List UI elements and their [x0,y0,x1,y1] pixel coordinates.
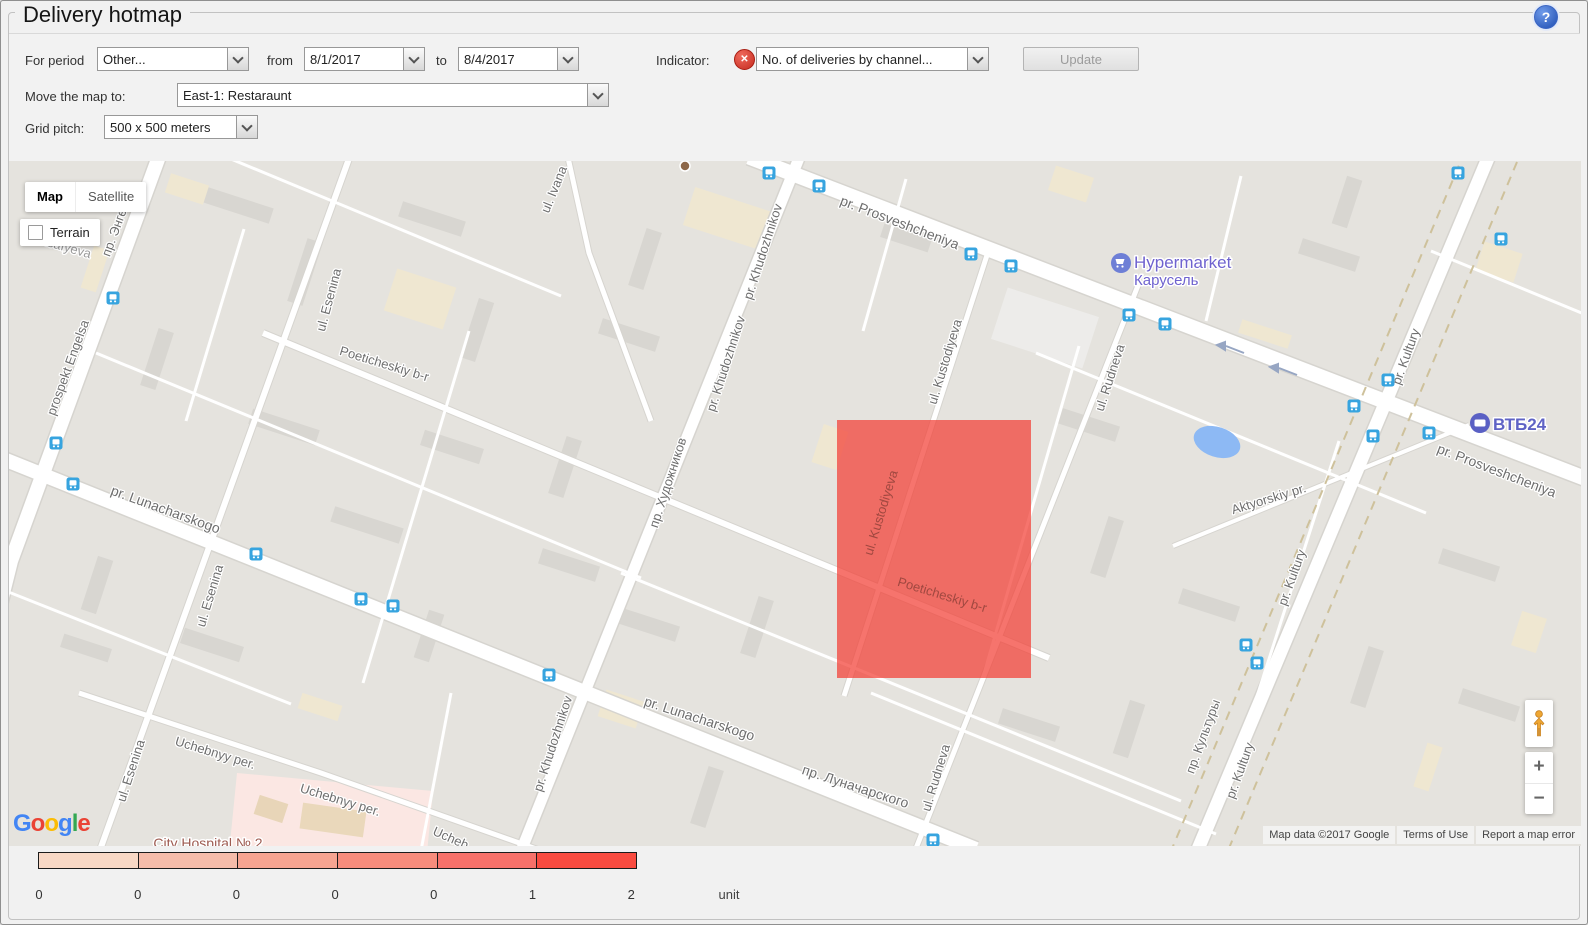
transit-stop-icon[interactable] [927,834,940,847]
legend-segment [138,852,239,869]
from-label: from [267,53,293,68]
terms-of-use-link[interactable]: Terms of Use [1397,826,1474,844]
move-map-value: East-1: Restaraunt [178,84,587,106]
transit-stop-icon[interactable] [250,548,263,561]
indicator-select[interactable]: No. of deliveries by channel... [756,47,989,71]
legend-segment [536,852,637,869]
to-date-select[interactable]: 8/4/2017 [458,47,579,71]
grid-pitch-select[interactable]: 500 x 500 meters [104,115,258,139]
to-label: to [436,53,447,68]
transit-stop-icon[interactable] [1240,639,1253,652]
pond [1190,420,1245,463]
update-button[interactable]: Update [1023,47,1139,71]
heatmap-legend [39,852,637,869]
map-buildings [60,176,1520,828]
street-label: ul. Esenina [114,737,148,804]
legend-segment [337,852,438,869]
transit-stop-icon[interactable] [50,437,63,450]
legend-segment [38,852,139,869]
map-type-satellite-button[interactable]: Satellite [75,182,146,212]
transit-stop-icon[interactable] [107,292,120,305]
move-map-select[interactable]: East-1: Restaraunt [177,83,609,107]
map-type-map-button[interactable]: Map [25,182,75,212]
transit-stop-icon[interactable] [1423,427,1436,440]
poi-dot[interactable] [680,161,690,171]
map-canvas[interactable]: пр. ЭнгельсаAsafyevaprospekt Engelsaul. … [9,161,1581,846]
street-label: Poeticheskiy b-r [338,343,431,385]
transit-stop-icon[interactable] [1159,318,1172,331]
indicator-select-value: No. of deliveries by channel... [757,48,967,70]
legend-tick: 0 [430,887,437,902]
street-label: ul. Ivana [538,163,571,215]
for-period-label: For period [25,53,84,68]
legend-segment [437,852,538,869]
transit-stop-icon[interactable] [965,248,978,261]
poi-hypermarket-sublabel: Карусель [1134,272,1199,289]
transit-stop-icon[interactable] [67,478,80,491]
google-logo[interactable]: Google [13,810,90,838]
transit-stop-icon[interactable] [387,600,400,613]
chevron-down-icon[interactable] [587,84,608,106]
transit-stop-icon[interactable] [763,167,776,180]
street-label: пр. Художников [646,436,689,530]
poi-bank-label: ВТБ24 [1493,415,1547,434]
legend-unit-label: unit [719,887,740,902]
validation-error-icon [734,49,755,70]
terrain-checkbox[interactable] [28,225,43,240]
chevron-down-icon[interactable] [403,48,424,70]
report-map-error-link[interactable]: Report a map error [1476,826,1581,844]
zoom-in-button[interactable]: + [1525,752,1553,783]
poi-hospital-label[interactable]: City Hospital № 2 [153,835,262,846]
legend-tick: 1 [529,887,536,902]
street-label: пр. Культуры [1182,697,1223,775]
chevron-down-icon[interactable] [236,116,257,138]
from-date-select[interactable]: 8/1/2017 [304,47,425,71]
move-map-label: Move the map to: [25,89,125,104]
legend-tick: 0 [331,887,338,902]
bank-icon [1475,420,1486,427]
terrain-toggle[interactable]: Terrain [20,219,100,246]
legend-tick: 2 [628,887,635,902]
period-select-value: Other... [98,48,227,70]
legend-tick: 0 [134,887,141,902]
poi-hypermarket-label: Hypermarket [1134,253,1232,272]
delivery-hotmap-window: Delivery hotmap ? For period Other... fr… [0,0,1588,925]
transit-stop-icon[interactable] [1452,167,1465,180]
zoom-out-button[interactable]: − [1525,783,1553,815]
street-label: ul. Esenina [313,266,344,333]
terrain-label: Terrain [50,225,90,240]
chevron-down-icon[interactable] [557,48,578,70]
page-title: Delivery hotmap [15,2,190,28]
transit-stop-icon[interactable] [813,180,826,193]
transit-stop-icon[interactable] [1005,260,1018,273]
transit-stop-icon[interactable] [1251,657,1264,670]
map-type-control: Map Satellite [25,182,146,212]
legend-tick: 0 [233,887,240,902]
transit-stop-icon[interactable] [543,669,556,682]
legend-tick: 0 [35,887,42,902]
transit-stop-icon[interactable] [1382,374,1395,387]
pegman-icon [1531,709,1547,739]
map-attribution: Map data ©2017 Google Terms of Use Repor… [1261,826,1581,844]
pegman-control[interactable] [1525,700,1553,747]
legend-segment [237,852,338,869]
street-label: ul. Rudneva [918,742,953,813]
chevron-down-icon[interactable] [967,48,988,70]
zoom-control: + − [1525,752,1553,814]
chevron-down-icon[interactable] [227,48,248,70]
transit-stop-icon[interactable] [1495,233,1508,246]
indicator-label: Indicator: [656,53,709,68]
grid-pitch-value: 500 x 500 meters [105,116,236,138]
help-icon[interactable]: ? [1534,5,1558,29]
map-data-copyright: Map data ©2017 Google [1263,826,1395,844]
transit-stop-icon[interactable] [1123,309,1136,322]
grid-pitch-label: Grid pitch: [25,121,84,136]
from-date-value: 8/1/2017 [305,48,403,70]
to-date-value: 8/4/2017 [459,48,557,70]
transit-stop-icon[interactable] [1348,400,1361,413]
transit-stop-icon[interactable] [355,593,368,606]
poi-bank[interactable]: ВТБ24 [1470,413,1547,434]
period-select[interactable]: Other... [97,47,249,71]
transit-stop-icon[interactable] [1367,430,1380,443]
